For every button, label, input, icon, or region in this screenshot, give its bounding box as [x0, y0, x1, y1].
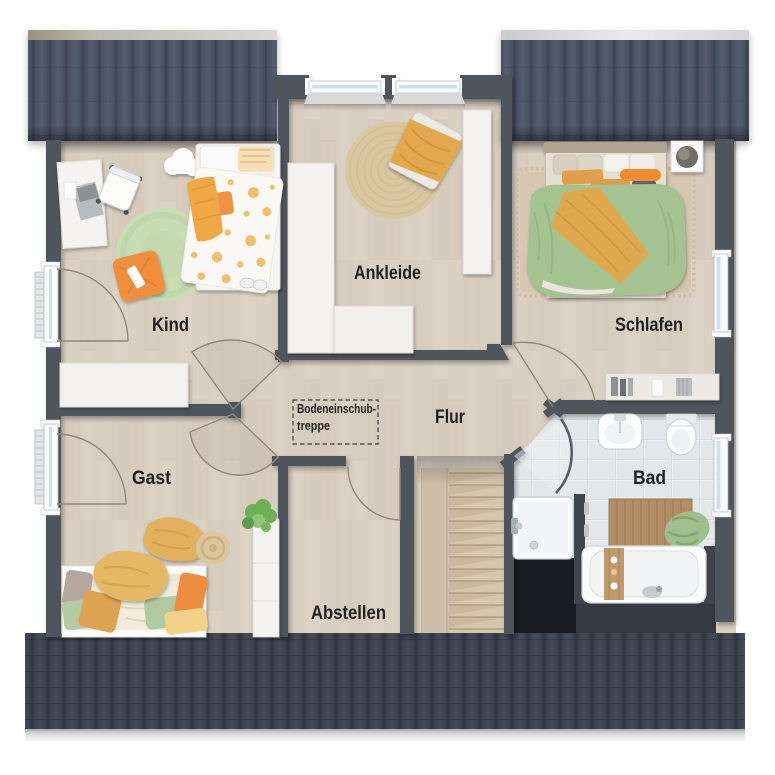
svg-text:Bodeneinschub-: Bodeneinschub- [297, 401, 376, 416]
svg-text:Gast: Gast [132, 467, 171, 489]
svg-text:Kind: Kind [152, 314, 189, 336]
svg-text:Bad: Bad [633, 467, 666, 489]
svg-text:treppe: treppe [297, 418, 330, 433]
svg-text:Ankleide: Ankleide [354, 262, 421, 284]
svg-text:Flur: Flur [435, 406, 465, 428]
svg-text:Schlafen: Schlafen [615, 314, 683, 336]
svg-text:Abstellen: Abstellen [311, 602, 386, 624]
